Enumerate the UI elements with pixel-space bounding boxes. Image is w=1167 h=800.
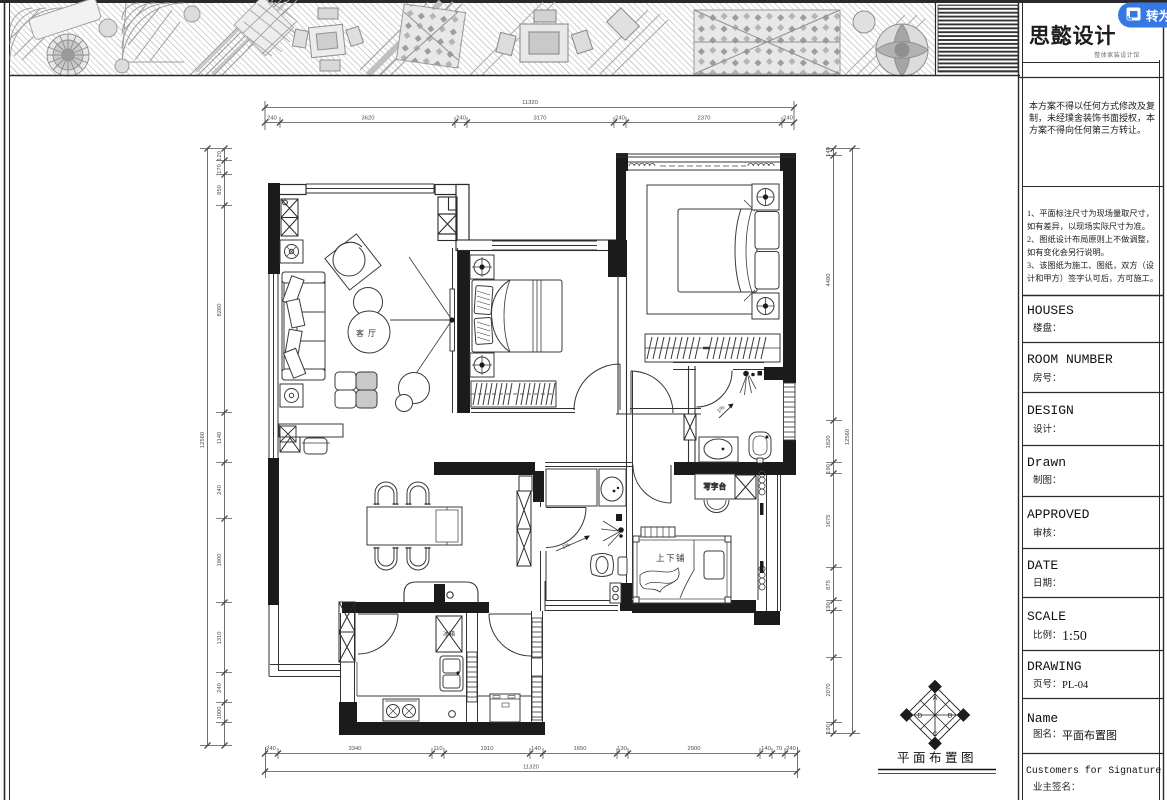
svg-text:2900: 2900 xyxy=(688,746,701,752)
svg-text:DATE: DATE xyxy=(1027,558,1058,573)
svg-text:240: 240 xyxy=(266,746,276,752)
svg-text:190: 190 xyxy=(826,724,832,734)
svg-text:比例：: 比例： xyxy=(1033,629,1062,641)
svg-text:3170: 3170 xyxy=(534,116,547,122)
svg-text:冰箱: 冰箱 xyxy=(443,630,455,638)
svg-text:1675: 1675 xyxy=(826,515,832,528)
svg-text:170: 170 xyxy=(217,164,223,174)
svg-text:1000: 1000 xyxy=(217,707,223,720)
svg-text:审核：: 审核： xyxy=(1033,527,1062,539)
svg-text:1910: 1910 xyxy=(481,746,494,752)
svg-text:制，未经璞舍装饰书面授权，本: 制，未经璞舍装饰书面授权，本 xyxy=(1029,112,1155,123)
svg-text:190: 190 xyxy=(826,602,832,612)
svg-text:240: 240 xyxy=(783,116,793,122)
svg-text:Drawn: Drawn xyxy=(1027,455,1066,470)
svg-text:2370: 2370 xyxy=(698,116,711,122)
svg-text:图名：: 图名： xyxy=(1033,728,1062,740)
svg-text:875: 875 xyxy=(826,580,832,590)
svg-text:设计：: 设计： xyxy=(1033,423,1062,435)
svg-text:240: 240 xyxy=(456,116,466,122)
svg-text:140: 140 xyxy=(531,746,541,752)
svg-text:3340: 3340 xyxy=(349,746,362,752)
svg-text:平面布置图: 平面布置图 xyxy=(897,751,977,765)
svg-text:写字台: 写字台 xyxy=(703,482,726,491)
svg-text:240: 240 xyxy=(786,746,796,752)
svg-text:130: 130 xyxy=(617,746,627,752)
svg-text:1:50: 1:50 xyxy=(1062,629,1087,644)
svg-text:190: 190 xyxy=(826,464,832,474)
svg-text:A: A xyxy=(933,695,938,702)
svg-text:如有变化会另行说明。: 如有变化会另行说明。 xyxy=(1027,247,1109,257)
svg-text:C: C xyxy=(933,731,938,738)
svg-text:110: 110 xyxy=(433,746,442,752)
svg-text:140: 140 xyxy=(826,147,832,157)
svg-text:DESIGN: DESIGN xyxy=(1027,403,1074,418)
svg-text:11320: 11320 xyxy=(522,100,538,106)
svg-text:B: B xyxy=(948,713,953,720)
svg-text:70: 70 xyxy=(776,746,782,752)
svg-text:1800: 1800 xyxy=(217,554,223,567)
svg-text:日期：: 日期： xyxy=(1033,578,1062,589)
svg-text:4480: 4480 xyxy=(826,274,832,287)
svg-text:140: 140 xyxy=(761,746,771,752)
svg-text:240: 240 xyxy=(217,683,223,693)
svg-text:上下铺: 上下铺 xyxy=(656,553,686,563)
svg-text:1820: 1820 xyxy=(826,436,832,449)
svg-text:制图：: 制图： xyxy=(1033,474,1062,486)
svg-text:房号：: 房号： xyxy=(1033,372,1062,384)
svg-text:本方案不得以任何方式修改及复: 本方案不得以任何方式修改及复 xyxy=(1029,100,1155,111)
svg-text:Name: Name xyxy=(1027,711,1058,726)
svg-text:1、平面标注尺寸为现场量取尺寸，: 1、平面标注尺寸为现场量取尺寸， xyxy=(1027,208,1154,218)
svg-text:1650: 1650 xyxy=(574,746,587,752)
svg-text:页号：: 页号： xyxy=(1033,679,1062,690)
svg-text:客厅: 客厅 xyxy=(356,328,380,338)
svg-text:Customers for Signature: Customers for Signature xyxy=(1026,765,1161,776)
svg-text:11320: 11320 xyxy=(523,765,539,771)
svg-text:3、该图纸为施工、图纸，双方（设: 3、该图纸为施工、图纸，双方（设 xyxy=(1027,260,1154,270)
svg-text:2070: 2070 xyxy=(826,684,832,697)
svg-text:12560: 12560 xyxy=(200,432,206,448)
svg-text:方案不得向任何第三方转让。: 方案不得向任何第三方转让。 xyxy=(1029,124,1146,135)
svg-text:12560: 12560 xyxy=(845,429,851,445)
svg-text:业主签名：: 业主签名： xyxy=(1033,781,1081,793)
svg-text:1140: 1140 xyxy=(217,432,223,444)
svg-text:3620: 3620 xyxy=(362,116,375,122)
svg-text:SCALE: SCALE xyxy=(1027,609,1066,624)
svg-text:整体家装设计馆: 整体家装设计馆 xyxy=(1094,51,1140,59)
svg-text:240: 240 xyxy=(615,116,625,122)
svg-text:240: 240 xyxy=(217,485,223,495)
svg-text:APPROVED: APPROVED xyxy=(1027,507,1090,522)
svg-text:1310: 1310 xyxy=(217,632,223,645)
svg-text:850: 850 xyxy=(217,185,223,195)
svg-text:2、图纸设计布局原则上不做调整，: 2、图纸设计布局原则上不做调整， xyxy=(1027,234,1154,244)
svg-text:计和甲方）签字认可后，方可施工。: 计和甲方）签字认可后，方可施工。 xyxy=(1027,273,1158,283)
svg-text:PL-04: PL-04 xyxy=(1062,680,1089,691)
svg-text:240: 240 xyxy=(267,116,277,122)
svg-text:DRAWING: DRAWING xyxy=(1027,659,1082,674)
svg-text:8260: 8260 xyxy=(217,304,223,317)
svg-text:转为: 转为 xyxy=(1146,9,1167,24)
svg-text:思懿设计: 思懿设计 xyxy=(1029,24,1116,48)
svg-text:ROOM NUMBER: ROOM NUMBER xyxy=(1027,352,1113,367)
svg-text:D: D xyxy=(918,713,923,720)
svg-text:楼盘：: 楼盘： xyxy=(1033,322,1062,334)
svg-text:如有差异，以现场实际尺寸为准。: 如有差异，以现场实际尺寸为准。 xyxy=(1027,221,1150,231)
svg-text:HOUSES: HOUSES xyxy=(1027,303,1074,318)
svg-text:平面布置图: 平面布置图 xyxy=(1062,729,1117,742)
svg-text:120: 120 xyxy=(217,151,223,161)
